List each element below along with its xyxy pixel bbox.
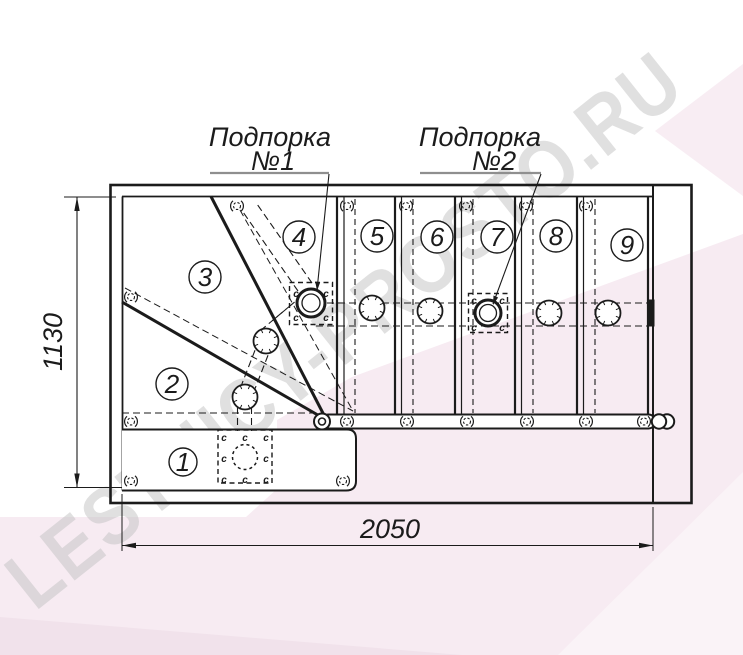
tread-number-7: 7 [481, 221, 513, 253]
handrail-beam [322, 415, 655, 429]
dim-width-value: 2050 [359, 514, 420, 544]
bolt-icon [231, 201, 244, 211]
c-mark: c [221, 454, 227, 465]
tread-label: 4 [292, 222, 306, 252]
tread-label: 8 [549, 221, 564, 251]
c-mark: c [263, 433, 269, 444]
c-mark: c [471, 323, 477, 334]
baluster-icon [254, 329, 279, 354]
support-label-1: Подпорка №1 [209, 122, 331, 291]
c-mark: c [242, 433, 248, 444]
bolt-icon [125, 416, 138, 426]
tread-label: 1 [176, 447, 190, 477]
bolt-icon [341, 201, 354, 211]
staircase-plan-drawing: LESTNICY-PROSTO.RU [0, 0, 743, 655]
tread-label: 3 [198, 262, 213, 292]
support-post-2 [475, 300, 501, 326]
tread-number-4: 4 [283, 221, 315, 253]
c-mark: c [499, 323, 505, 334]
leader-line [317, 174, 329, 290]
dim-height-value: 1130 [38, 313, 68, 371]
support-post-1 [297, 289, 325, 317]
c-mark: c [499, 296, 505, 307]
c-mark: c [221, 433, 227, 444]
c-mark: c [323, 289, 329, 300]
tread-number-6: 6 [421, 221, 453, 253]
dim-arrow [74, 197, 79, 211]
staircase-plan-page: LESTNICY-PROSTO.RU [0, 0, 743, 655]
baluster-icon [596, 301, 621, 326]
baluster-icon [360, 296, 385, 321]
tread-number-9: 9 [611, 229, 643, 261]
bottom-platform [122, 430, 356, 491]
tread-number-2: 2 [156, 368, 188, 400]
tread-number-5: 5 [361, 220, 393, 252]
baluster-icon [418, 299, 443, 324]
support1-number: №1 [251, 146, 295, 176]
tread-number-8: 8 [540, 220, 572, 252]
c-mark: c [471, 296, 477, 307]
c-mark: c [293, 313, 299, 324]
baluster-icon [537, 301, 562, 326]
c-mark: c [263, 454, 269, 465]
tread-label: 7 [490, 222, 506, 252]
c-mark: c [221, 475, 227, 486]
bolt-icon [580, 201, 593, 211]
tread-label: 2 [164, 369, 180, 399]
handrail-start-cap [314, 414, 330, 430]
support2-number: №2 [472, 146, 516, 176]
baluster-icon [233, 385, 258, 410]
c-mark: c [242, 475, 248, 486]
c-mark: c [293, 289, 299, 300]
tread-label: 9 [620, 230, 634, 260]
handrail-end-cap [652, 414, 666, 428]
c-mark: c [263, 475, 269, 486]
tread-label: 6 [430, 222, 445, 252]
handrail [314, 414, 674, 430]
tread-number-1: 1 [169, 447, 197, 477]
c-mark: c [323, 313, 329, 324]
tread-label: 5 [370, 221, 385, 251]
chain-wall-anchor [648, 300, 654, 326]
tread-number-3: 3 [189, 261, 221, 293]
